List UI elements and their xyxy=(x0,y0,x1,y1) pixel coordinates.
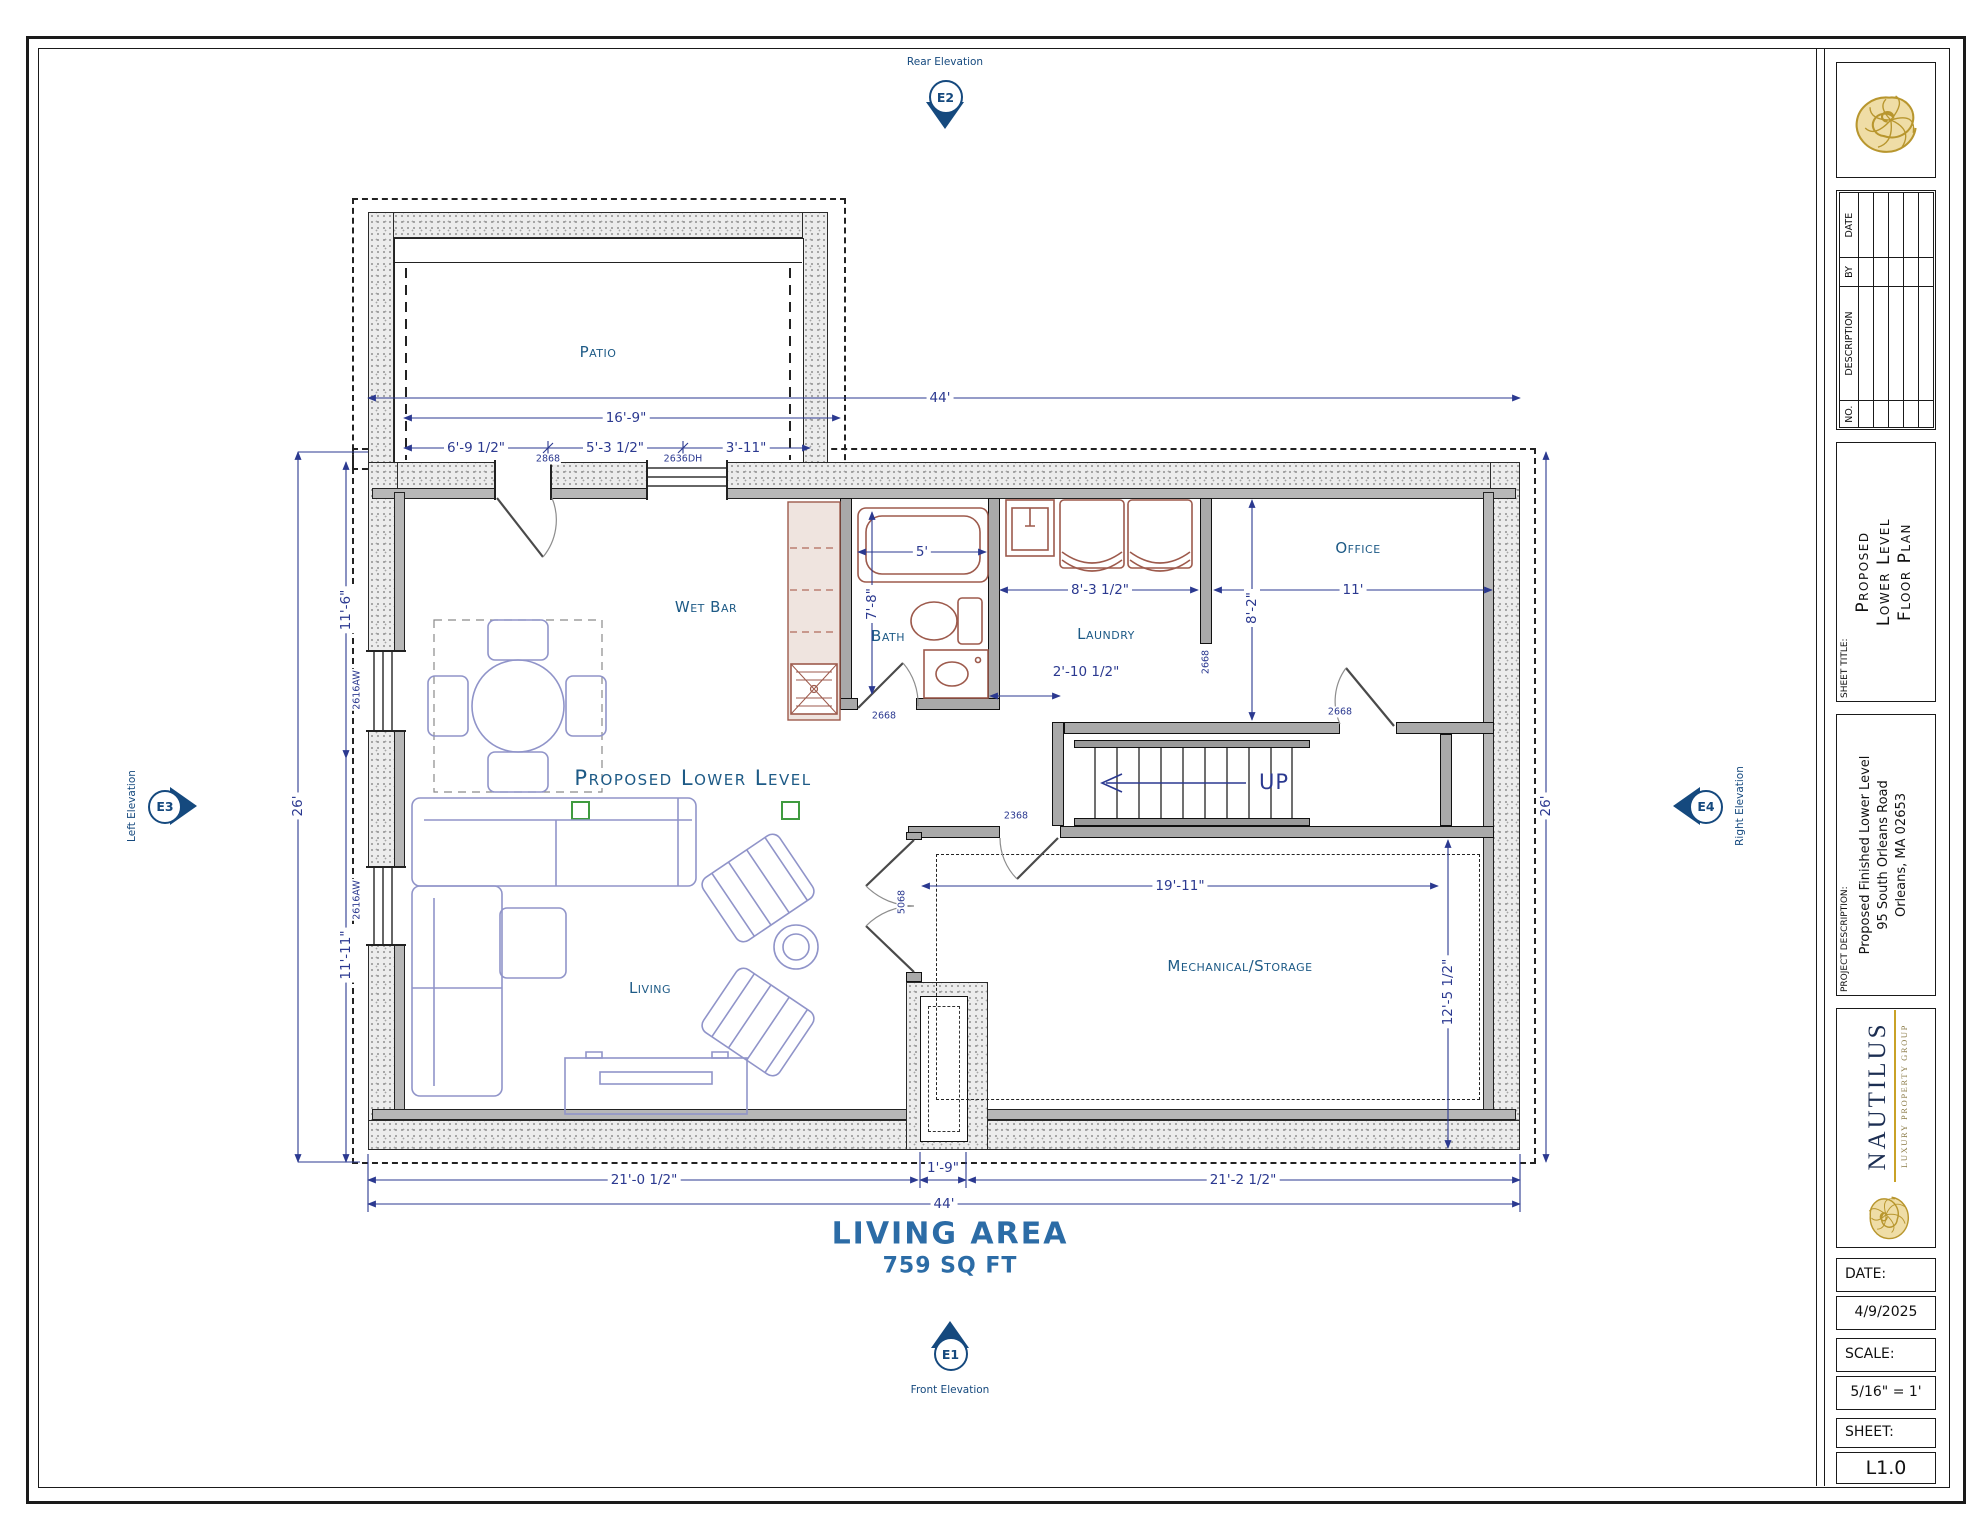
elevation-label-right: Right Elevation xyxy=(1734,766,1746,846)
sheet-label: SHEET: xyxy=(1837,1419,1935,1440)
room-label-mechanical: Mechanical/Storage xyxy=(1167,957,1312,975)
dim-mech-depth: 12'-5 1/2" xyxy=(1440,956,1456,1029)
revision-row xyxy=(1889,193,1904,428)
rev-header-description: DESCRIPTION xyxy=(1840,286,1859,401)
dim-office-depth: 8'-2" xyxy=(1244,589,1260,627)
jamb-5068-top xyxy=(906,832,922,840)
scale-value-box: 5/16" = 1' xyxy=(1836,1376,1936,1410)
mechanical-storage-outline xyxy=(936,854,1480,1100)
scale-label: SCALE: xyxy=(1837,1339,1935,1362)
project-description-label: PROJECT DESCRIPTION: xyxy=(1840,886,1850,992)
revision-table: NO. DESCRIPTION BY DATE xyxy=(1839,192,1934,428)
dim-laundry-width: 8'-3 1/2" xyxy=(1068,582,1132,598)
left-window-upper-opening xyxy=(366,650,406,732)
brand-tagline: Luxury Property Group xyxy=(1899,1010,1909,1182)
dim-mech-width: 19'-11" xyxy=(1152,878,1207,894)
left-window-lower-opening xyxy=(366,866,406,946)
sheet-value-box: L1.0 xyxy=(1836,1452,1936,1484)
dim-office-width: 11' xyxy=(1340,582,1367,598)
project-line1: Proposed Finished Lower Level xyxy=(1857,716,1875,994)
title-block-divider-outer xyxy=(1816,48,1817,1486)
patio-cap-line xyxy=(394,262,802,263)
elevation-marker-e1: E1 xyxy=(926,1326,974,1374)
sheet-title-line2: Lower Level xyxy=(1874,444,1895,700)
date-value: 4/9/2025 xyxy=(1837,1297,1935,1320)
wall-stair-top-a xyxy=(1064,722,1340,734)
e4-id: E4 xyxy=(1689,790,1723,824)
sheet-label-box: SHEET: xyxy=(1836,1418,1936,1448)
wall-mech-top-b xyxy=(1060,826,1494,838)
wall-bath-bottom-a xyxy=(840,698,858,710)
wall-bath-right xyxy=(988,498,1000,710)
room-label-living: Living xyxy=(629,979,671,997)
date-label-box: DATE: xyxy=(1836,1258,1936,1292)
opening-door-living: 5068 xyxy=(897,889,908,915)
e3-id: E3 xyxy=(148,790,182,824)
revision-row xyxy=(1919,193,1934,428)
dim-bottom-right: 21'-2 1/2" xyxy=(1207,1172,1280,1188)
opening-window-left-upper: 2616AW xyxy=(352,669,363,711)
scale-value: 5/16" = 1' xyxy=(1837,1377,1935,1400)
dim-left-upper: 11'-6" xyxy=(338,587,354,634)
dim-seg1: 6'-9 1/2" xyxy=(444,440,508,456)
brand-name: NAUTILUS xyxy=(1864,1010,1892,1182)
sheet-title-box: SHEET TITLE: Proposed Lower Level Floor … xyxy=(1836,442,1936,702)
dim-hall: 2'-10 1/2" xyxy=(1053,664,1120,680)
elevation-label-rear: Rear Elevation xyxy=(907,56,983,68)
elevation-marker-e4: E4 xyxy=(1678,782,1726,830)
e2-id: E2 xyxy=(929,80,963,114)
dim-patio-width: 16'-9" xyxy=(603,410,650,426)
room-label-bath: Bath xyxy=(871,627,905,645)
wall-stair-top-b xyxy=(1396,722,1494,734)
logo-box xyxy=(1836,62,1936,178)
elevation-marker-e2: E2 xyxy=(921,76,969,124)
dim-seg2: 5'-3 1/2" xyxy=(583,440,647,456)
house-wall-right xyxy=(1490,462,1520,1150)
dim-seg3: 3'-11" xyxy=(723,440,770,456)
room-label-office: Office xyxy=(1335,539,1380,557)
dim-left-depth: 26' xyxy=(290,793,306,820)
house-wall-left-finish xyxy=(394,492,405,1116)
wall-bath-bottom-b xyxy=(916,698,1000,710)
sheet-title-line3: Floor Plan xyxy=(1895,444,1916,700)
e1-id: E1 xyxy=(934,1337,968,1371)
patio-wall-left xyxy=(368,212,394,470)
stairs-up-label: UP xyxy=(1259,770,1289,794)
opening-door-bath: 2668 xyxy=(871,711,897,722)
stair-rail-top xyxy=(1074,740,1310,748)
dim-bath-depth: 7'-8" xyxy=(864,585,880,623)
project-line3: Orleans, MA 02653 xyxy=(1893,716,1911,994)
rev-header-date: DATE xyxy=(1840,193,1859,258)
patio-wall-top xyxy=(368,212,828,238)
dim-bottom-left: 21'-0 1/2" xyxy=(608,1172,681,1188)
opening-door-patio: 2868 xyxy=(535,454,561,465)
opening-door-hall: 2668 xyxy=(1201,649,1212,675)
room-label-patio: Patio xyxy=(580,343,617,361)
revision-table-box: NO. DESCRIPTION BY DATE xyxy=(1836,190,1936,430)
opening-window-left-lower: 2616AW xyxy=(352,879,363,921)
date-value-box: 4/9/2025 xyxy=(1836,1296,1936,1330)
dim-overall-top: 44' xyxy=(927,390,954,406)
sheet-title-line1: Proposed xyxy=(1853,444,1874,700)
elevation-label-front: Front Elevation xyxy=(911,1384,990,1396)
jamb-5068-bottom xyxy=(906,972,922,982)
opening-window-patio: 2636DH xyxy=(663,454,704,465)
nautilus-shell-small-icon xyxy=(1858,1190,1914,1246)
rev-header-no: NO. xyxy=(1840,401,1859,428)
revision-row xyxy=(1859,193,1874,428)
brand-rule xyxy=(1894,1010,1896,1182)
patio-wall-right xyxy=(802,212,828,470)
elevation-label-left: Left Elevation xyxy=(126,770,138,842)
dim-overall-bottom: 44' xyxy=(931,1196,958,1212)
date-label: DATE: xyxy=(1837,1259,1935,1282)
dim-tub: 5' xyxy=(913,544,931,560)
stair-rail-bottom xyxy=(1074,818,1310,826)
scale-label-box: SCALE: xyxy=(1836,1338,1936,1372)
plan-title: Proposed Lower Level xyxy=(574,766,811,790)
wall-laundry-office xyxy=(1200,498,1212,644)
nautilus-shell-icon xyxy=(1846,80,1926,160)
room-label-wet-bar: Wet Bar xyxy=(675,598,737,616)
dim-right-depth: 26' xyxy=(1538,793,1554,820)
project-description-box: PROJECT DESCRIPTION: Proposed Finished L… xyxy=(1836,714,1936,996)
living-area-title: LIVING AREA xyxy=(832,1217,1069,1252)
elevation-marker-e3: E3 xyxy=(144,782,192,830)
wall-bath-left xyxy=(840,498,852,710)
title-block-divider-inner xyxy=(1824,48,1825,1486)
revision-row xyxy=(1874,193,1889,428)
rev-header-by: BY xyxy=(1840,258,1859,286)
floor-plan-sheet: { "colors": {"accent": "#2b3990", "room_… xyxy=(0,0,1988,1536)
sheet-value: L1.0 xyxy=(1837,1453,1935,1479)
house-wall-right-finish xyxy=(1483,492,1494,1116)
room-label-laundry: Laundry xyxy=(1077,625,1135,643)
dim-left-lower: 11'-11" xyxy=(338,927,354,982)
wall-hall-left xyxy=(1052,722,1064,826)
sheet-title-label: SHEET TITLE: xyxy=(1840,638,1850,698)
project-line2: 95 South Orleans Road xyxy=(1875,716,1893,994)
patio-window-opening xyxy=(646,460,728,500)
patio-door-opening xyxy=(494,460,552,500)
dim-chimney: 1'-9" xyxy=(925,1160,961,1176)
brand-box: NAUTILUS Luxury Property Group xyxy=(1836,1008,1936,1248)
opening-door-mech: 2368 xyxy=(1003,811,1029,822)
revision-row xyxy=(1904,193,1919,428)
opening-door-office: 2668 xyxy=(1327,707,1353,718)
wall-stair-nook xyxy=(1440,734,1452,826)
living-area-value: 759 SQ FT xyxy=(883,1254,1018,1279)
